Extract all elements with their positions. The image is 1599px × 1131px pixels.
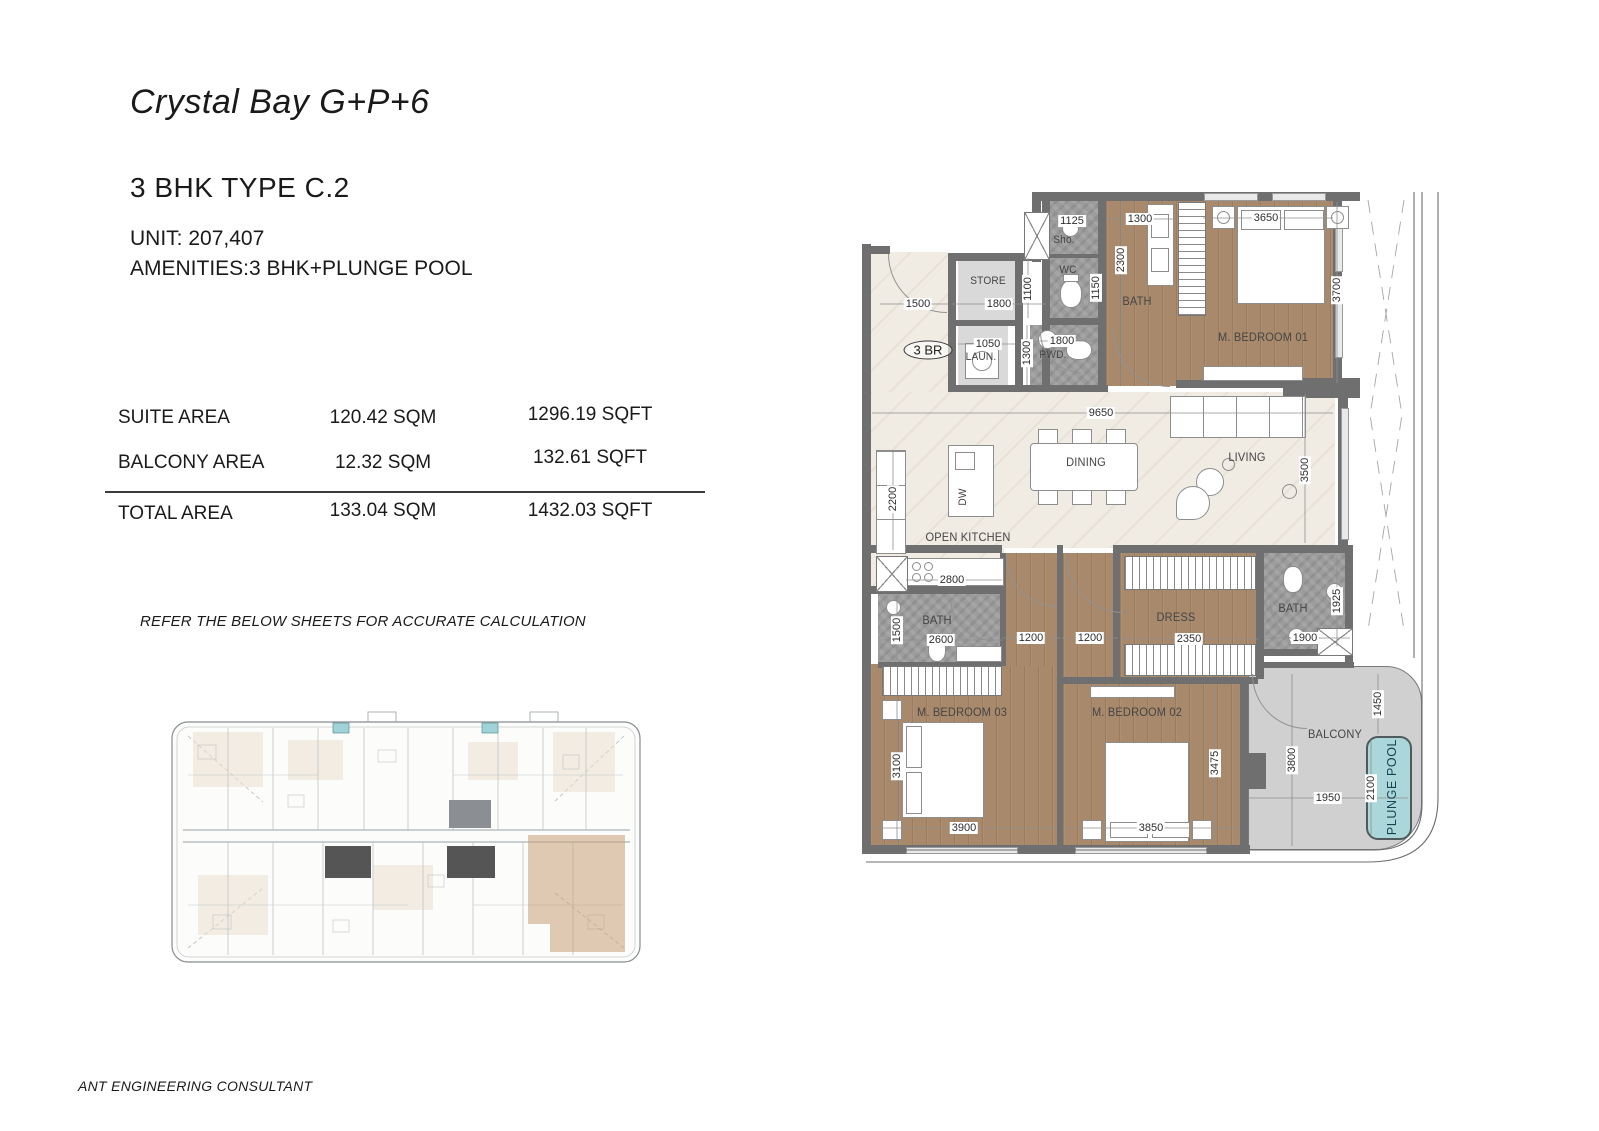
consultant-footer: ANT ENGINEERING CONSULTANT (78, 1078, 312, 1094)
wall (948, 385, 1108, 392)
room-label-dining: DINING (1066, 455, 1106, 469)
chair (1038, 429, 1058, 444)
dim-wc-1150: 1150 (1090, 274, 1102, 302)
chair (1072, 429, 1092, 444)
dim-hall-1200-a: 1200 (1017, 632, 1045, 644)
room-label-powder: PWD. (1039, 349, 1066, 361)
suite-area-label: SUITE AREA (118, 407, 230, 429)
shaft (1024, 212, 1050, 260)
wall (1248, 753, 1266, 789)
room-label-bath-master: BATH (1122, 294, 1151, 308)
pillow (906, 726, 922, 768)
wall (1113, 545, 1258, 553)
dim-balcony-3800: 3800 (1286, 746, 1298, 774)
room-label-shower: Sho. (1053, 234, 1075, 246)
window (1341, 408, 1349, 540)
unit-type-title: 3 BHK TYPE C.2 (130, 172, 350, 204)
keyplan-pool-icon (333, 723, 349, 733)
wall (1050, 254, 1098, 258)
wardrobe (882, 666, 1002, 696)
calculation-note: REFER THE BELOW SHEETS FOR ACCURATE CALC… (140, 613, 586, 630)
wall (1063, 677, 1258, 684)
dim-living-9650: 9650 (1087, 407, 1115, 419)
wall (1240, 679, 1248, 848)
sofa (1170, 396, 1306, 438)
pillow (1284, 210, 1324, 230)
room-label-wc: WC (1059, 264, 1076, 276)
dim-bed3-3900: 3900 (950, 822, 978, 834)
window (1075, 847, 1207, 854)
dim-pwd-1800: 1800 (1048, 335, 1076, 347)
dim-bed1-3650: 3650 (1252, 212, 1280, 224)
dim-living-3500: 3500 (1299, 456, 1311, 484)
burner-icon (912, 573, 921, 582)
room-label-bath-02: BATH (1278, 601, 1307, 615)
wall (1057, 553, 1063, 848)
page-title: Crystal Bay G+P+6 (130, 83, 430, 122)
dim-kitchen-2800: 2800 (938, 574, 966, 586)
wall (1256, 553, 1264, 679)
room-label-open-kitchen: OPEN KITCHEN (925, 530, 1010, 544)
room-label-bath-03: BATH (922, 613, 951, 627)
burner-icon (924, 573, 933, 582)
nightstand (882, 820, 902, 840)
dim-bath2-1925: 1925 (1331, 587, 1343, 615)
armchair (1176, 486, 1210, 520)
toilet (1283, 566, 1303, 593)
wall (1042, 318, 1106, 325)
wall (1248, 662, 1354, 668)
dim-store-1100: 1100 (1022, 275, 1034, 303)
dim-kitchen-2200: 2200 (887, 485, 899, 513)
suite-area-sqft: 1296.19 SQFT (528, 404, 653, 426)
lamp-icon (1217, 211, 1230, 224)
total-area-sqm: 133.04 SQM (330, 500, 437, 522)
dim-store-1800: 1800 (985, 298, 1013, 310)
wall (1283, 378, 1360, 398)
store-floor (958, 258, 1016, 322)
amenities-line: AMENITIES:3 BHK+PLUNGE POOL (130, 257, 473, 281)
balcony-area-label: BALCONY AREA (118, 452, 264, 474)
shower-head-icon (886, 600, 901, 615)
shaft (1317, 628, 1353, 656)
side-table (1282, 484, 1297, 499)
nightstand (1082, 820, 1102, 840)
chair (1072, 490, 1092, 505)
wall (1057, 545, 1063, 553)
dim-bath3-2600: 2600 (927, 634, 955, 646)
room-label-living: LIVING (1228, 450, 1265, 464)
toilet (1060, 280, 1082, 308)
unit-type-badge: 3 BR (904, 341, 953, 360)
tv-console (1090, 686, 1175, 698)
sink (1151, 248, 1169, 272)
lamp-icon (1331, 211, 1344, 224)
dim-balcony-1450: 1450 (1372, 690, 1384, 718)
dim-bed3-3100: 3100 (891, 752, 903, 780)
dim-bed2-3850: 3850 (1137, 822, 1165, 834)
burner-icon (912, 562, 921, 571)
dim-bath2-1900: 1900 (1291, 632, 1319, 644)
room-label-balcony: BALCONY (1308, 727, 1362, 741)
room-label-dishwasher: DW (957, 488, 969, 505)
nightstand (882, 700, 902, 720)
shaft (876, 556, 908, 592)
floorplan-sheet: Crystal Bay G+P+6 3 BHK TYPE C.2 UNIT: 2… (0, 0, 1599, 1131)
room-label-bedroom-02: M. BEDROOM 02 (1092, 705, 1182, 719)
wall (862, 246, 890, 254)
wall (948, 320, 1023, 326)
kitchen-sink (955, 452, 975, 470)
room-label-bedroom-03: M. BEDROOM 03 (917, 705, 1007, 719)
dim-pool-2100: 2100 (1365, 774, 1377, 802)
dim-bed1-3700: 3700 (1331, 276, 1343, 304)
nightstand (1192, 820, 1212, 840)
chair (1038, 490, 1058, 505)
wardrobe (1124, 644, 1256, 676)
room-label-store: STORE (970, 275, 1006, 287)
key-plan-thumbnail (168, 700, 646, 968)
tv-console (1203, 366, 1303, 381)
window (1204, 193, 1258, 201)
dim-pwd-1300: 1300 (1021, 339, 1033, 367)
dim-bath3-1500: 1500 (891, 616, 903, 644)
vanity (956, 646, 1002, 662)
wall (1258, 545, 1353, 553)
burner-icon (924, 562, 933, 571)
pillow (906, 772, 922, 814)
room-label-bedroom-01: M. BEDROOM 01 (1218, 330, 1308, 344)
wardrobe (1124, 556, 1256, 590)
balcony-area-sqm: 12.32 SQM (335, 452, 431, 474)
chair (1106, 429, 1126, 444)
window (1272, 193, 1326, 201)
total-area-label: TOTAL AREA (118, 503, 233, 525)
glazing-dashes (1368, 200, 1404, 630)
dim-entry-1500: 1500 (904, 298, 932, 310)
table-divider (105, 491, 705, 493)
keyplan-pool-icon (482, 723, 498, 733)
dim-bath1-2300: 2300 (1115, 246, 1127, 274)
wall (1176, 380, 1283, 388)
dim-hall-1200-b: 1200 (1076, 632, 1104, 644)
room-label-laundry: LAUN. (966, 351, 997, 363)
room-label-dress: DRESS (1157, 610, 1196, 624)
dim-bath1-1300: 1300 (1126, 213, 1154, 225)
chair (1106, 490, 1126, 505)
dim-balcony-1950: 1950 (1314, 792, 1342, 804)
suite-area-sqm: 120.42 SQM (330, 407, 437, 429)
balcony-area-sqft: 132.61 SQFT (533, 447, 647, 469)
dim-dress-2350: 2350 (1175, 633, 1203, 645)
total-area-sqft: 1432.03 SQFT (528, 500, 653, 522)
dim-bed2-3475: 3475 (1209, 749, 1221, 777)
wardrobe (1178, 202, 1206, 316)
unit-number: UNIT: 207,407 (130, 227, 264, 251)
dim-sho-1125: 1125 (1058, 215, 1086, 227)
window (906, 847, 1018, 854)
dim-laun-1050: 1050 (974, 338, 1002, 350)
room-label-plunge-pool: PLUNGE POOL (1385, 739, 1399, 835)
